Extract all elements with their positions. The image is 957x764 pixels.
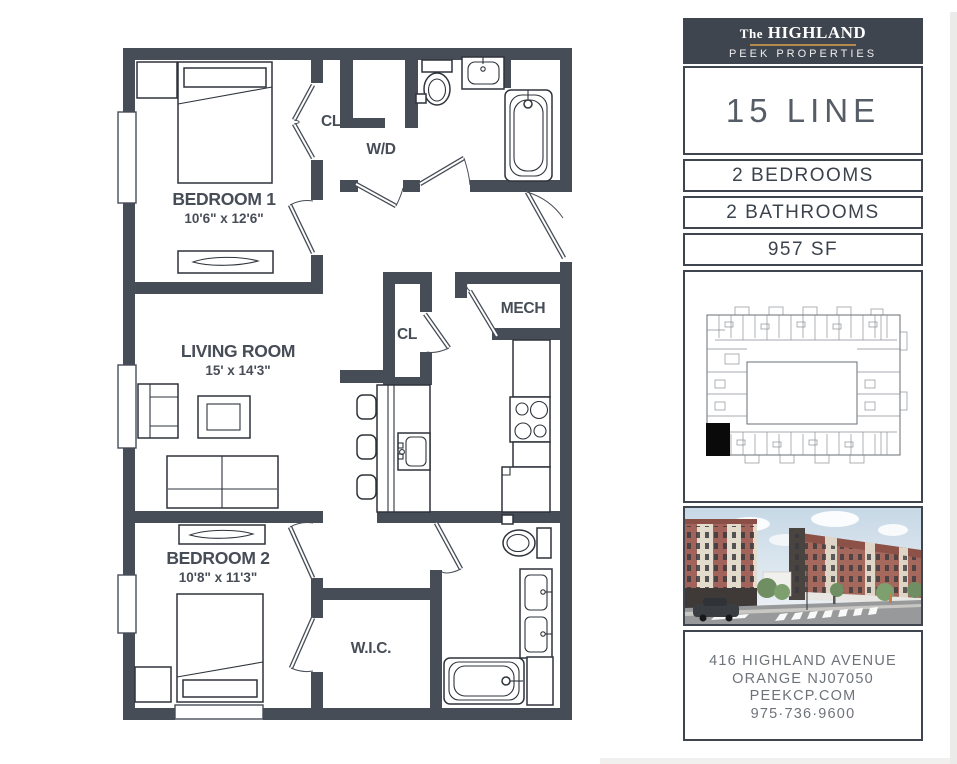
address-box: 416 HIGHLAND AVENUE ORANGE NJ07050 PEEKC… bbox=[683, 630, 923, 741]
brand-name: The HIGHLAND bbox=[683, 24, 923, 42]
armchair bbox=[138, 384, 178, 438]
unit-name: 15 LINE bbox=[726, 92, 880, 130]
bedroom2-label: BEDROOM 2 bbox=[166, 548, 270, 568]
page-edge-bottom bbox=[600, 758, 950, 764]
unit-name-box: 15 LINE bbox=[683, 66, 923, 155]
pillow bbox=[184, 68, 266, 87]
nightstand bbox=[135, 667, 171, 702]
pillow bbox=[183, 680, 257, 697]
brand-title: HIGHLAND bbox=[768, 23, 866, 42]
page-edge-right bbox=[950, 12, 957, 764]
closet-top-label: CL bbox=[321, 113, 341, 130]
room-labels: BEDROOM 1 10'6" x 12'6" LIVING ROOM 15' … bbox=[166, 113, 545, 657]
address-street: 416 HIGHLAND AVENUE bbox=[709, 653, 897, 671]
stool bbox=[357, 395, 376, 419]
spec-area: 957 SF bbox=[683, 233, 923, 266]
keyplan-box bbox=[683, 270, 923, 503]
fridge bbox=[502, 467, 550, 512]
address-website: PEEKCP.COM bbox=[750, 688, 857, 706]
tub-faucet bbox=[502, 677, 510, 685]
unit-location-marker bbox=[706, 423, 730, 456]
toilet-bowl bbox=[503, 530, 535, 556]
mech-label: MECH bbox=[501, 300, 546, 317]
floor-plan: BEDROOM 1 10'6" x 12'6" LIVING ROOM 15' … bbox=[0, 0, 680, 764]
bedroom1-dims: 10'6" x 12'6" bbox=[184, 211, 263, 226]
address-phone: 975·736·9600 bbox=[751, 706, 856, 724]
toilet-tank bbox=[422, 60, 452, 72]
stool bbox=[357, 475, 376, 499]
brand-header: The HIGHLAND PEEK PROPERTIES bbox=[683, 18, 923, 64]
counter bbox=[513, 340, 550, 397]
tp-holder bbox=[416, 94, 426, 103]
bathroom2-fixtures bbox=[444, 515, 553, 705]
stool bbox=[357, 435, 376, 459]
laundry-label: W/D bbox=[366, 141, 395, 158]
brand-subtitle: PEEK PROPERTIES bbox=[683, 48, 923, 60]
address-city: ORANGE NJ07050 bbox=[732, 671, 874, 689]
living-furniture bbox=[138, 384, 278, 508]
flyer-page: BEDROOM 1 10'6" x 12'6" LIVING ROOM 15' … bbox=[0, 0, 957, 764]
bedroom1-furniture bbox=[137, 62, 273, 273]
spec-area-label: 957 SF bbox=[768, 239, 838, 261]
tp-holder bbox=[502, 515, 513, 524]
building-rendering bbox=[685, 508, 921, 624]
bathroom1-fixtures bbox=[416, 57, 552, 181]
spec-bedrooms-label: 2 BEDROOMS bbox=[732, 165, 874, 187]
gold-rule bbox=[750, 44, 856, 46]
bedroom2-dims: 10'8" x 11'3" bbox=[179, 570, 258, 585]
spec-bathrooms-label: 2 BATHROOMS bbox=[726, 202, 879, 224]
info-sidebar: The HIGHLAND PEEK PROPERTIES 15 LINE 2 B… bbox=[683, 18, 923, 741]
spec-bathrooms: 2 BATHROOMS bbox=[683, 196, 923, 229]
bedroom1-label: BEDROOM 1 bbox=[172, 189, 276, 209]
toilet-bowl bbox=[424, 73, 450, 105]
bath-shelf bbox=[527, 657, 553, 705]
keyplan bbox=[685, 272, 921, 501]
living-dims: 15' x 14'3" bbox=[205, 363, 270, 378]
coffee-table bbox=[198, 396, 250, 438]
counter bbox=[513, 442, 550, 467]
nightstand bbox=[137, 62, 177, 98]
brand-prefix: The bbox=[740, 26, 763, 41]
building-photo-box bbox=[683, 506, 923, 626]
living-label: LIVING ROOM bbox=[181, 341, 295, 361]
toilet-tank bbox=[537, 528, 551, 558]
closet-mid-label: CL bbox=[397, 326, 417, 343]
tub-faucet bbox=[524, 100, 532, 108]
wic-label: W.I.C. bbox=[351, 640, 391, 657]
spec-bedrooms: 2 BEDROOMS bbox=[683, 159, 923, 192]
